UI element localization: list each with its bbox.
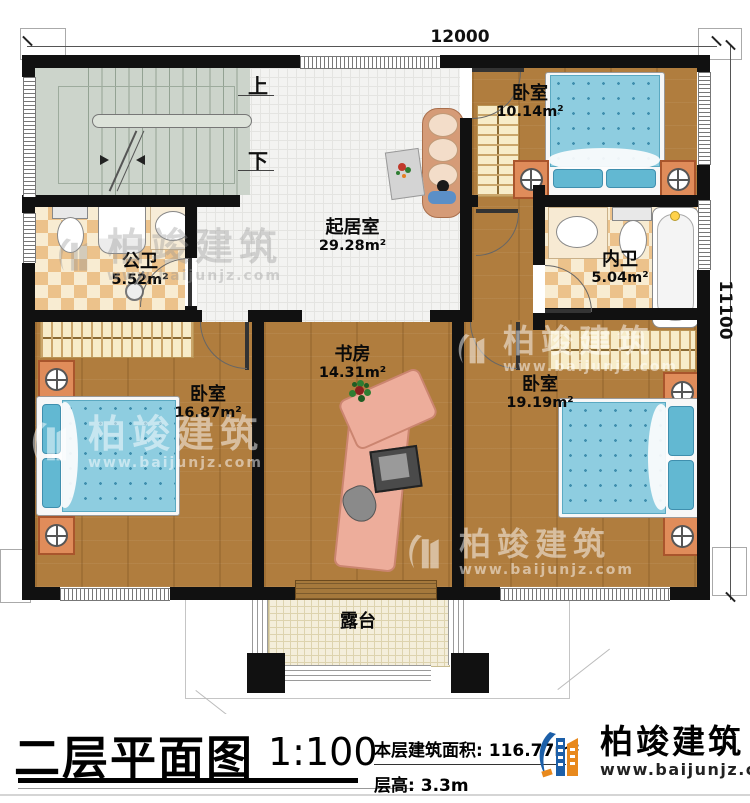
wall [533, 313, 545, 330]
wall [460, 118, 472, 322]
window [23, 213, 36, 263]
wardrobe [40, 318, 194, 358]
nightstand [38, 360, 75, 399]
coffee-table [385, 148, 425, 200]
wall [185, 207, 197, 258]
lamp [45, 368, 68, 391]
room-terrace [268, 598, 450, 667]
wall [533, 185, 545, 265]
pillow [606, 169, 656, 188]
room-label-bedroom-top-right: 卧室 10.14m² [470, 84, 590, 120]
window [500, 588, 670, 601]
lamp [45, 524, 68, 547]
wall [22, 55, 300, 68]
room-label-study: 书房 14.31m² [295, 345, 410, 381]
wall [22, 310, 202, 322]
toilet-tank [612, 207, 652, 221]
right-dimension-label: 11100 [715, 275, 735, 345]
scale-label: 1:100 [268, 730, 378, 774]
wall [170, 587, 262, 600]
room-label-bedroom-left: 卧室 16.87m² [148, 385, 268, 421]
pillow [668, 460, 694, 510]
sofa-cushion [428, 113, 458, 137]
brand-website: www.baijunjz.com [600, 760, 750, 779]
stair-handrail [92, 114, 252, 128]
window [23, 77, 36, 197]
wall [252, 322, 264, 600]
terrace-column [451, 653, 489, 693]
wall [670, 587, 710, 600]
top-dimension-line [27, 46, 717, 47]
bathtub-faucet [670, 211, 680, 221]
sliding-door [295, 580, 437, 600]
pillow [668, 406, 694, 456]
page-bottom-rule [0, 794, 750, 796]
floor-height: 层高: 3.3m [374, 771, 469, 796]
nightstand [38, 516, 75, 555]
wall [262, 587, 295, 600]
pillow [42, 404, 61, 454]
nightstand [660, 160, 696, 199]
terrace-column [247, 653, 285, 693]
stairs-down-line [238, 170, 274, 171]
monitor-screen [378, 453, 409, 481]
stair-arrow [100, 155, 109, 165]
lamp [667, 168, 690, 191]
window [60, 588, 170, 601]
wardrobe [548, 330, 696, 370]
wall [533, 195, 710, 207]
brand-logo-icon [534, 724, 594, 788]
room-label-bath-public: 公卫 5.52m² [95, 252, 185, 288]
title-underline [18, 778, 358, 783]
window [300, 56, 440, 69]
stairs-up-line [238, 95, 274, 96]
terrace-railing [285, 665, 431, 682]
flowers [398, 163, 406, 171]
pillow [42, 458, 61, 508]
wall [22, 55, 35, 77]
plant [355, 386, 364, 395]
sofa-cushion [428, 138, 458, 162]
wall [697, 55, 710, 72]
title-block: 二层平面图 1:100 本层建筑面积: 116.77m² 层高: 3.3m [0, 714, 750, 803]
room-label-bath-inner: 内卫 5.04m² [575, 250, 665, 286]
stair-landing-outline [58, 86, 235, 184]
room-label-living: 起居室 29.28m² [290, 218, 415, 254]
top-dimension-label: 12000 [420, 27, 500, 47]
floor-plan: 12000 11100 [0, 0, 750, 803]
lamp [671, 525, 694, 548]
wall [22, 587, 60, 600]
toilet [57, 217, 84, 253]
window [698, 200, 711, 270]
wall [452, 322, 464, 600]
room-label-terrace: 露台 [308, 612, 408, 632]
title-underline-thin [18, 788, 414, 789]
nightstand [663, 516, 701, 556]
washing-machine [98, 204, 146, 254]
person-body [428, 191, 456, 204]
wall [435, 587, 452, 600]
window [698, 72, 711, 165]
brand-logo: 柏竣建筑 www.baijunjz.com [534, 724, 750, 788]
pillow [553, 169, 603, 188]
stair-arrow [136, 155, 145, 165]
room-label-bedroom-right: 卧室 19.19m² [480, 375, 600, 411]
wall [460, 55, 472, 65]
wall [248, 310, 302, 322]
sink [556, 216, 598, 248]
wall [460, 195, 478, 207]
brand-name: 柏竣建筑 [600, 724, 750, 760]
wall [22, 195, 240, 207]
wall [440, 55, 710, 68]
